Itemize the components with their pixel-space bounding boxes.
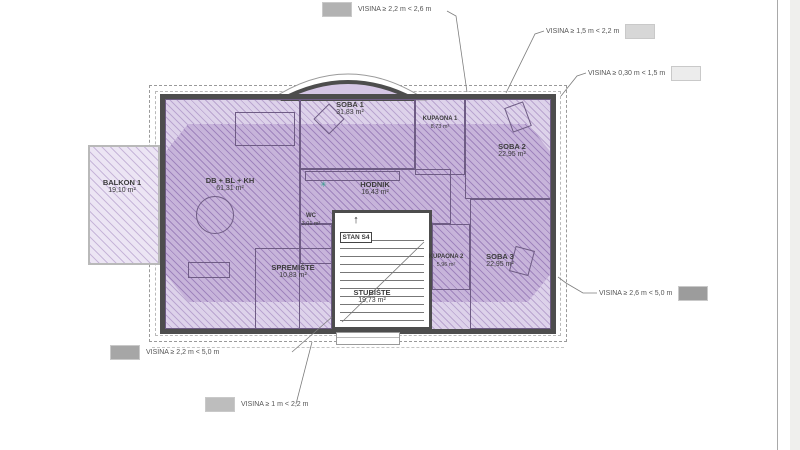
legend-item-2: VISINA ≥ 1,5 m < 2,2 m <box>546 24 655 39</box>
page-edge-divider <box>777 0 778 450</box>
room-area: 10,83 m² <box>271 272 314 281</box>
adjacent-page-strip <box>790 0 800 450</box>
room-area: 19,10 m² <box>103 187 141 196</box>
height-zone-label: VISINA ≥ 2,2 m < 2,6 m <box>358 6 431 13</box>
room-name: KUPAONA 1 <box>423 116 458 124</box>
unit-tag: ↑ STAN S4 <box>336 215 376 244</box>
room-name: KUPAONA 2 <box>429 254 464 262</box>
room-area: 19,73 m² <box>353 297 390 306</box>
room-label-soba1: SOBA 1 31,83 m² <box>336 100 364 118</box>
room-name: SOBA 2 <box>498 142 526 151</box>
room-area: 22,95 m² <box>486 261 514 270</box>
height-zone-swatch <box>322 2 352 17</box>
height-zone-swatch <box>671 66 701 81</box>
height-zone-label: VISINA ≥ 1 m < 2,2 m <box>241 401 308 408</box>
table-icon <box>196 196 234 234</box>
height-zone-swatch <box>110 345 140 360</box>
room-name: SPREMIŠTE <box>271 263 314 272</box>
room-name: BALKON 1 <box>103 178 141 187</box>
room-name: SOBA 3 <box>486 252 514 261</box>
height-zone-swatch <box>625 24 655 39</box>
room-label-stubiste: STUBIŠTE 19,73 m² <box>353 288 390 306</box>
height-zone-label: VISINA ≥ 2,2 m < 5,0 m <box>146 349 219 356</box>
height-zone-label: VISINA ≥ 2,6 m < 5,0 m <box>599 290 672 297</box>
section-line <box>152 347 564 348</box>
room-label-soba2: SOBA 2 22,95 m² <box>498 142 526 160</box>
room-area: 22,95 m² <box>498 151 526 160</box>
room-label-kupaona2: KUPAONA 2 5,96 m² <box>429 254 464 268</box>
legend-item-3: VISINA ≥ 0,30 m < 1,5 m <box>588 66 701 81</box>
room-spremiste <box>255 248 332 329</box>
legend-item-4: VISINA ≥ 2,6 m < 5,0 m <box>599 286 708 301</box>
cabinet-icon <box>235 112 295 146</box>
height-zone-swatch <box>678 286 708 301</box>
room-name: SOBA 1 <box>336 100 364 109</box>
room-area: 31,83 m² <box>336 109 364 118</box>
room-name: DB + BL + KH <box>206 176 255 185</box>
room-name: STUBIŠTE <box>353 288 390 297</box>
room-label-db-bl-kh: DB + BL + KH 61,31 m² <box>206 176 255 194</box>
room-balkon <box>88 145 160 265</box>
height-zone-swatch <box>205 397 235 412</box>
room-label-spremiste: SPREMIŠTE 10,83 m² <box>271 263 314 281</box>
room-label-balkon: BALKON 1 19,10 m² <box>103 178 141 196</box>
survey-marker-icon: ✳ <box>320 180 327 189</box>
desk-icon <box>188 262 230 278</box>
dormer-arch <box>268 56 428 101</box>
room-area: 5,96 m² <box>429 262 464 269</box>
room-label-hodnik: HODNIK 16,43 m² <box>360 180 390 198</box>
height-zone-label: VISINA ≥ 0,30 m < 1,5 m <box>588 70 665 77</box>
legend-item-6: VISINA ≥ 1 m < 2,2 m <box>205 397 308 412</box>
room-label-soba3: SOBA 3 22,95 m² <box>486 252 514 270</box>
height-zone-label: VISINA ≥ 1,5 m < 2,2 m <box>546 28 619 35</box>
room-kupaona1 <box>415 99 465 175</box>
room-area: 3,01 m² <box>302 221 321 228</box>
room-name: WC <box>302 213 321 221</box>
room-area: 8,73 m² <box>423 124 458 131</box>
stairs <box>340 240 424 324</box>
room-area: 16,43 m² <box>360 189 390 198</box>
room-label-wc: WC 3,01 m² <box>302 213 321 227</box>
room-name: HODNIK <box>360 180 390 189</box>
room-area: 61,31 m² <box>206 185 255 194</box>
floorplan-page: VISINA ≥ 2,2 m < 2,6 m VISINA ≥ 1,5 m < … <box>0 0 800 450</box>
legend-item-1: VISINA ≥ 2,2 m < 2,6 m <box>322 2 431 17</box>
unit-label: STAN S4 <box>340 232 373 243</box>
entry-steps <box>336 332 400 345</box>
up-arrow-icon: ↑ <box>336 215 376 226</box>
room-label-kupaona1: KUPAONA 1 8,73 m² <box>423 116 458 130</box>
